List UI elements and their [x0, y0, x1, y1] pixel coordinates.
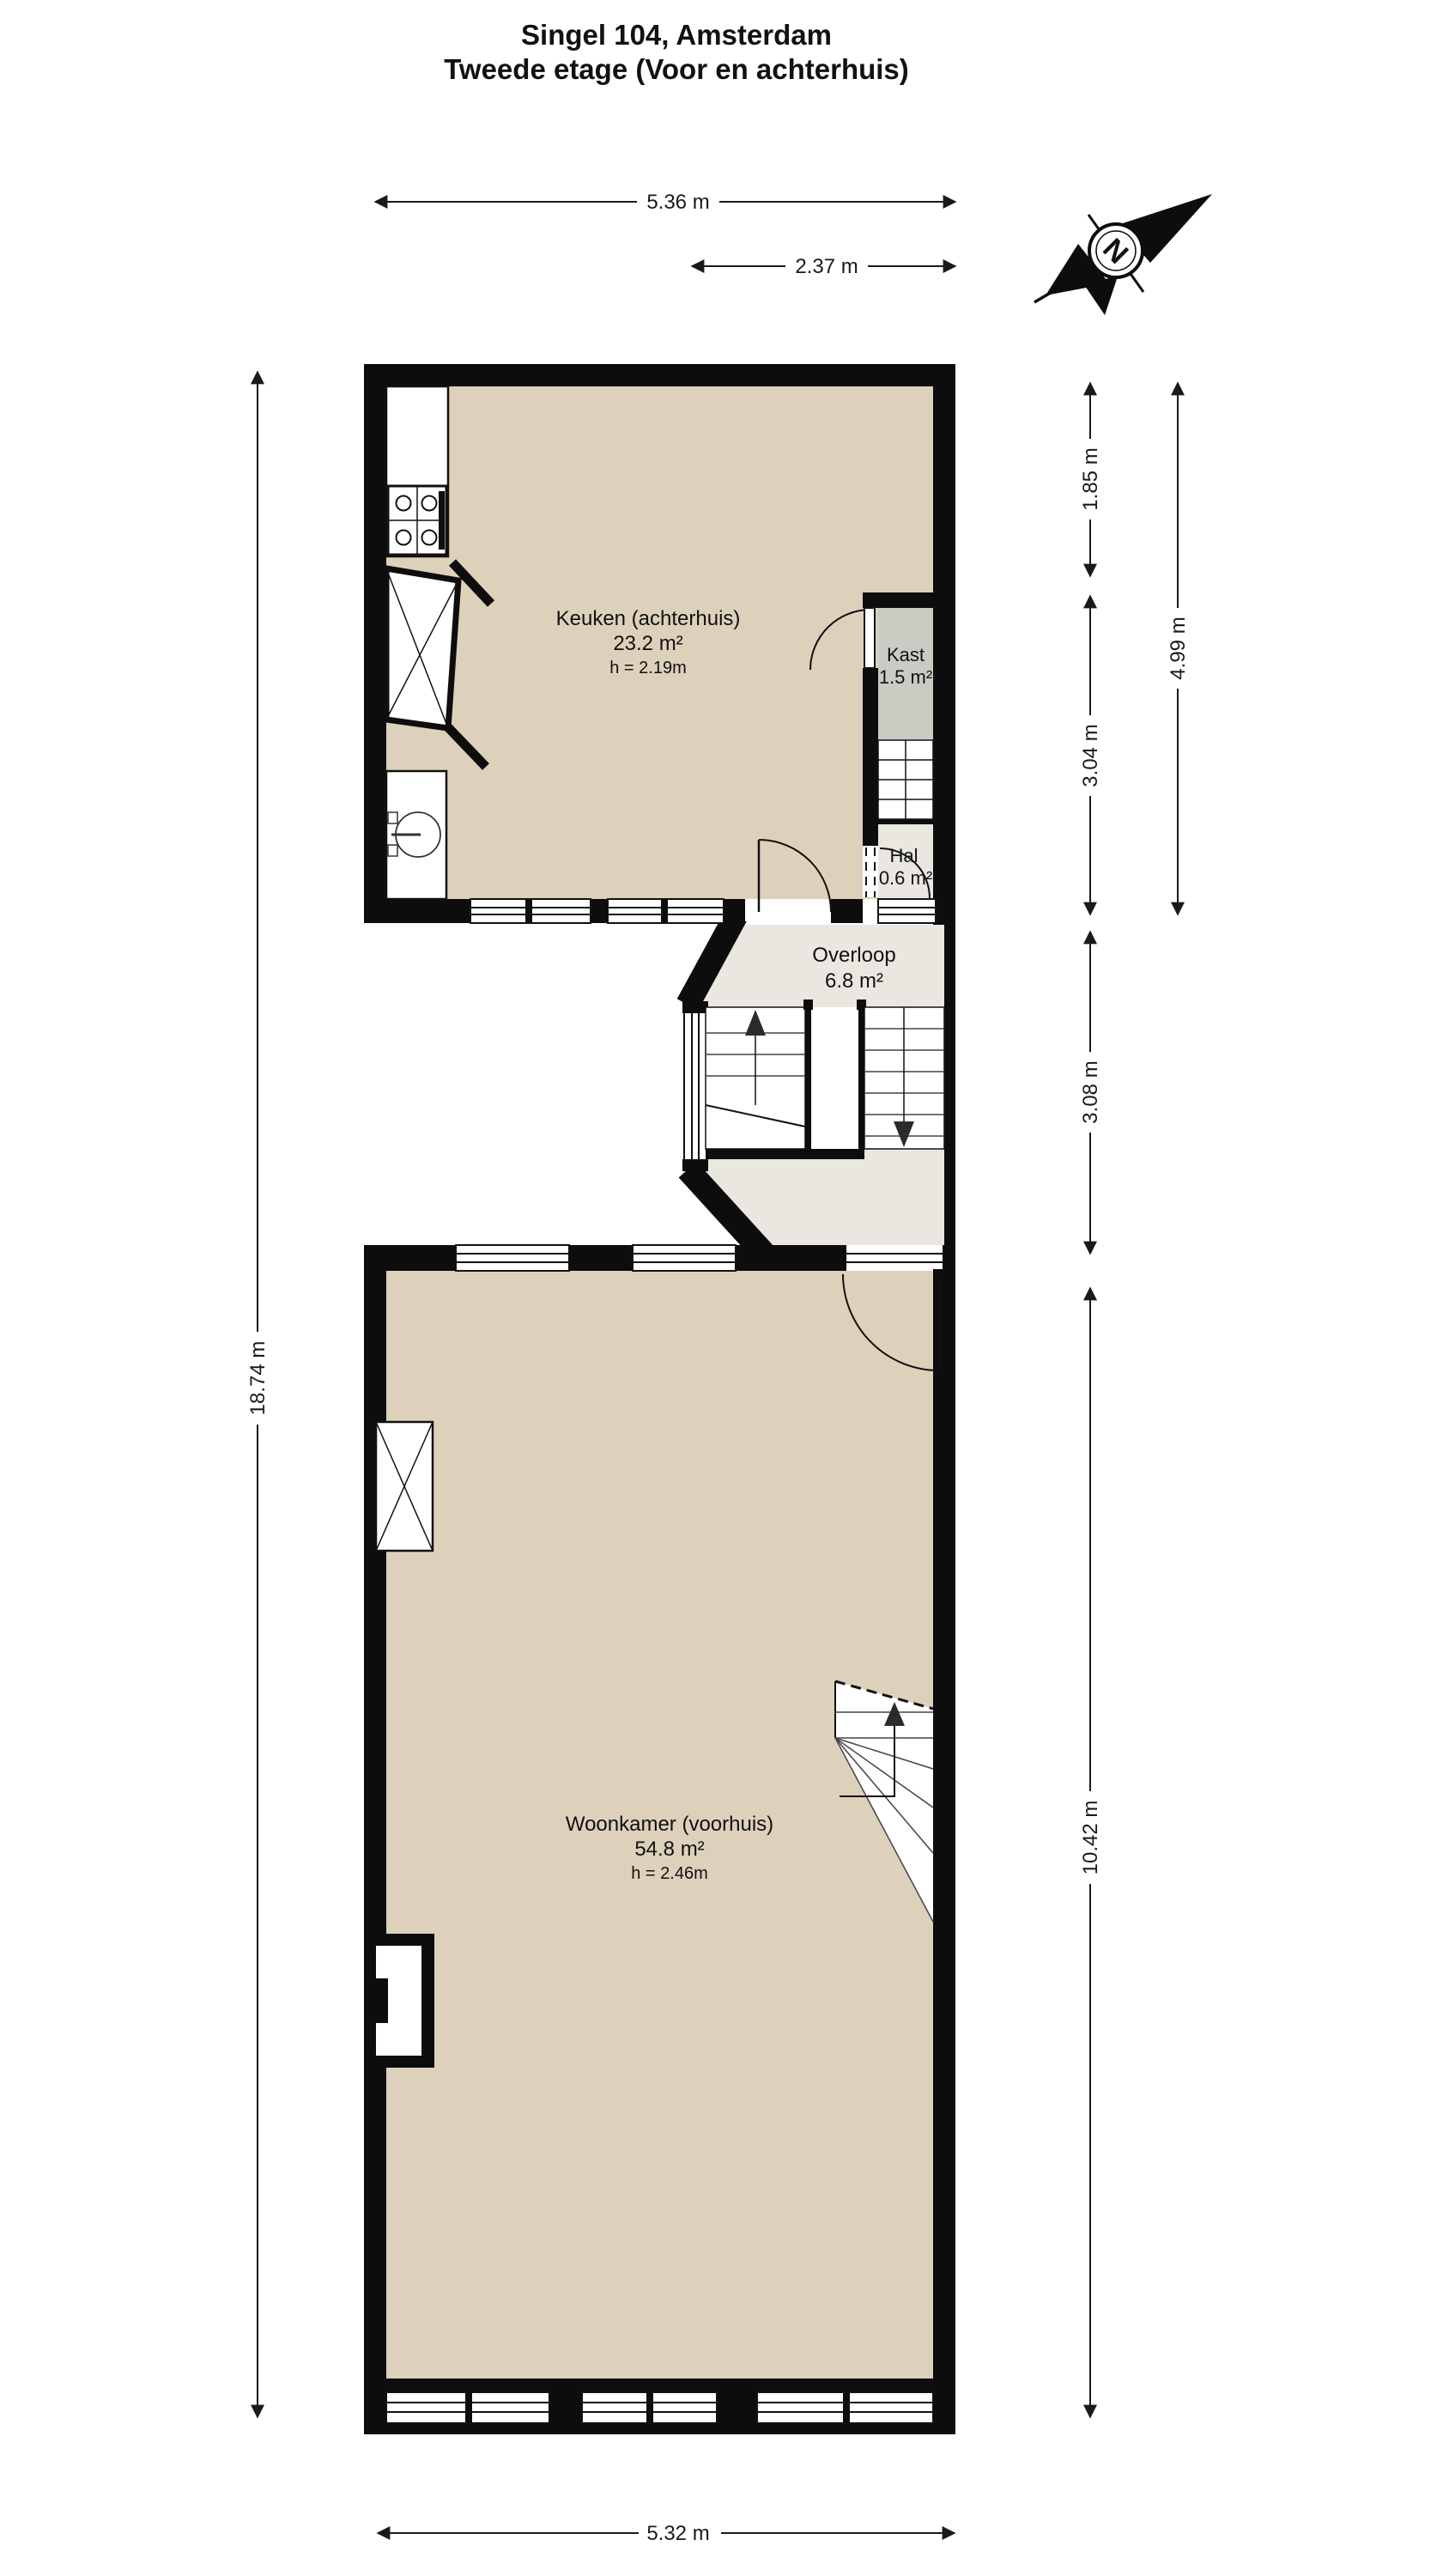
window-niche — [376, 1422, 433, 1551]
dim-right-outer: 4.99 m — [1167, 617, 1190, 679]
window-woonkamer-top-b — [633, 1245, 736, 1271]
dim-right-woonkamer: 10.42 m — [1079, 1801, 1102, 1875]
stair-void — [803, 999, 866, 1149]
floorplan-page: Singel 104, Amsterdam Tweede etage (Voor… — [0, 0, 1449, 2576]
dim-top-partial: 2.37 m — [795, 255, 858, 278]
woonkamer-area: 54.8 m² — [634, 1838, 704, 1861]
keuken-ceiling: h = 2.19m — [609, 659, 687, 677]
window-woonkamer-top-a — [456, 1245, 569, 1271]
plan-title: Singel 104, Amsterdam Tweede etage (Voor… — [444, 19, 909, 85]
kast-area: 1.5 m² — [879, 666, 932, 688]
hal-name: Hal — [889, 845, 918, 866]
dim-right-overloop: 3.08 m — [1079, 1060, 1102, 1123]
kast-name: Kast — [887, 644, 925, 665]
window-hal — [878, 899, 936, 923]
stairs-down — [864, 1007, 944, 1149]
chimney-breast — [376, 1934, 434, 2068]
window-woonkamer-bottom — [386, 2392, 933, 2423]
dim-right-inner-mid: 3.04 m — [1079, 724, 1102, 787]
dim-right-inner-top: 1.85 m — [1079, 447, 1102, 510]
dim-left-total: 18.74 m — [246, 1341, 270, 1416]
window-overloop — [682, 1001, 708, 1171]
overloop-area: 6.8 m² — [825, 969, 883, 993]
kast-stairs — [878, 740, 933, 819]
hal-area: 0.6 m² — [879, 867, 932, 889]
keuken-name: Keuken (achterhuis) — [556, 607, 741, 630]
woonkamer-ceiling: h = 2.46m — [631, 1864, 708, 1883]
keuken-area: 23.2 m² — [613, 632, 682, 655]
stove-icon — [388, 486, 446, 555]
woonkamer-name: Woonkamer (voorhuis) — [566, 1813, 773, 1836]
window-keuken-a — [470, 899, 591, 923]
room-floors — [386, 386, 944, 2379]
north-arrow-icon: N — [1034, 194, 1212, 315]
stairs-up — [706, 1007, 805, 1149]
overloop-name: Overloop — [812, 944, 895, 967]
plan-title-line1: Singel 104, Amsterdam — [521, 19, 832, 51]
dim-bottom-total: 5.32 m — [646, 2522, 709, 2545]
plan-title-line2: Tweede etage (Voor en achterhuis) — [444, 53, 909, 85]
dim-top-total: 5.36 m — [646, 191, 709, 214]
window-keuken-b — [608, 899, 724, 923]
floorplan-canvas: Singel 104, Amsterdam Tweede etage (Voor… — [0, 0, 1449, 2576]
